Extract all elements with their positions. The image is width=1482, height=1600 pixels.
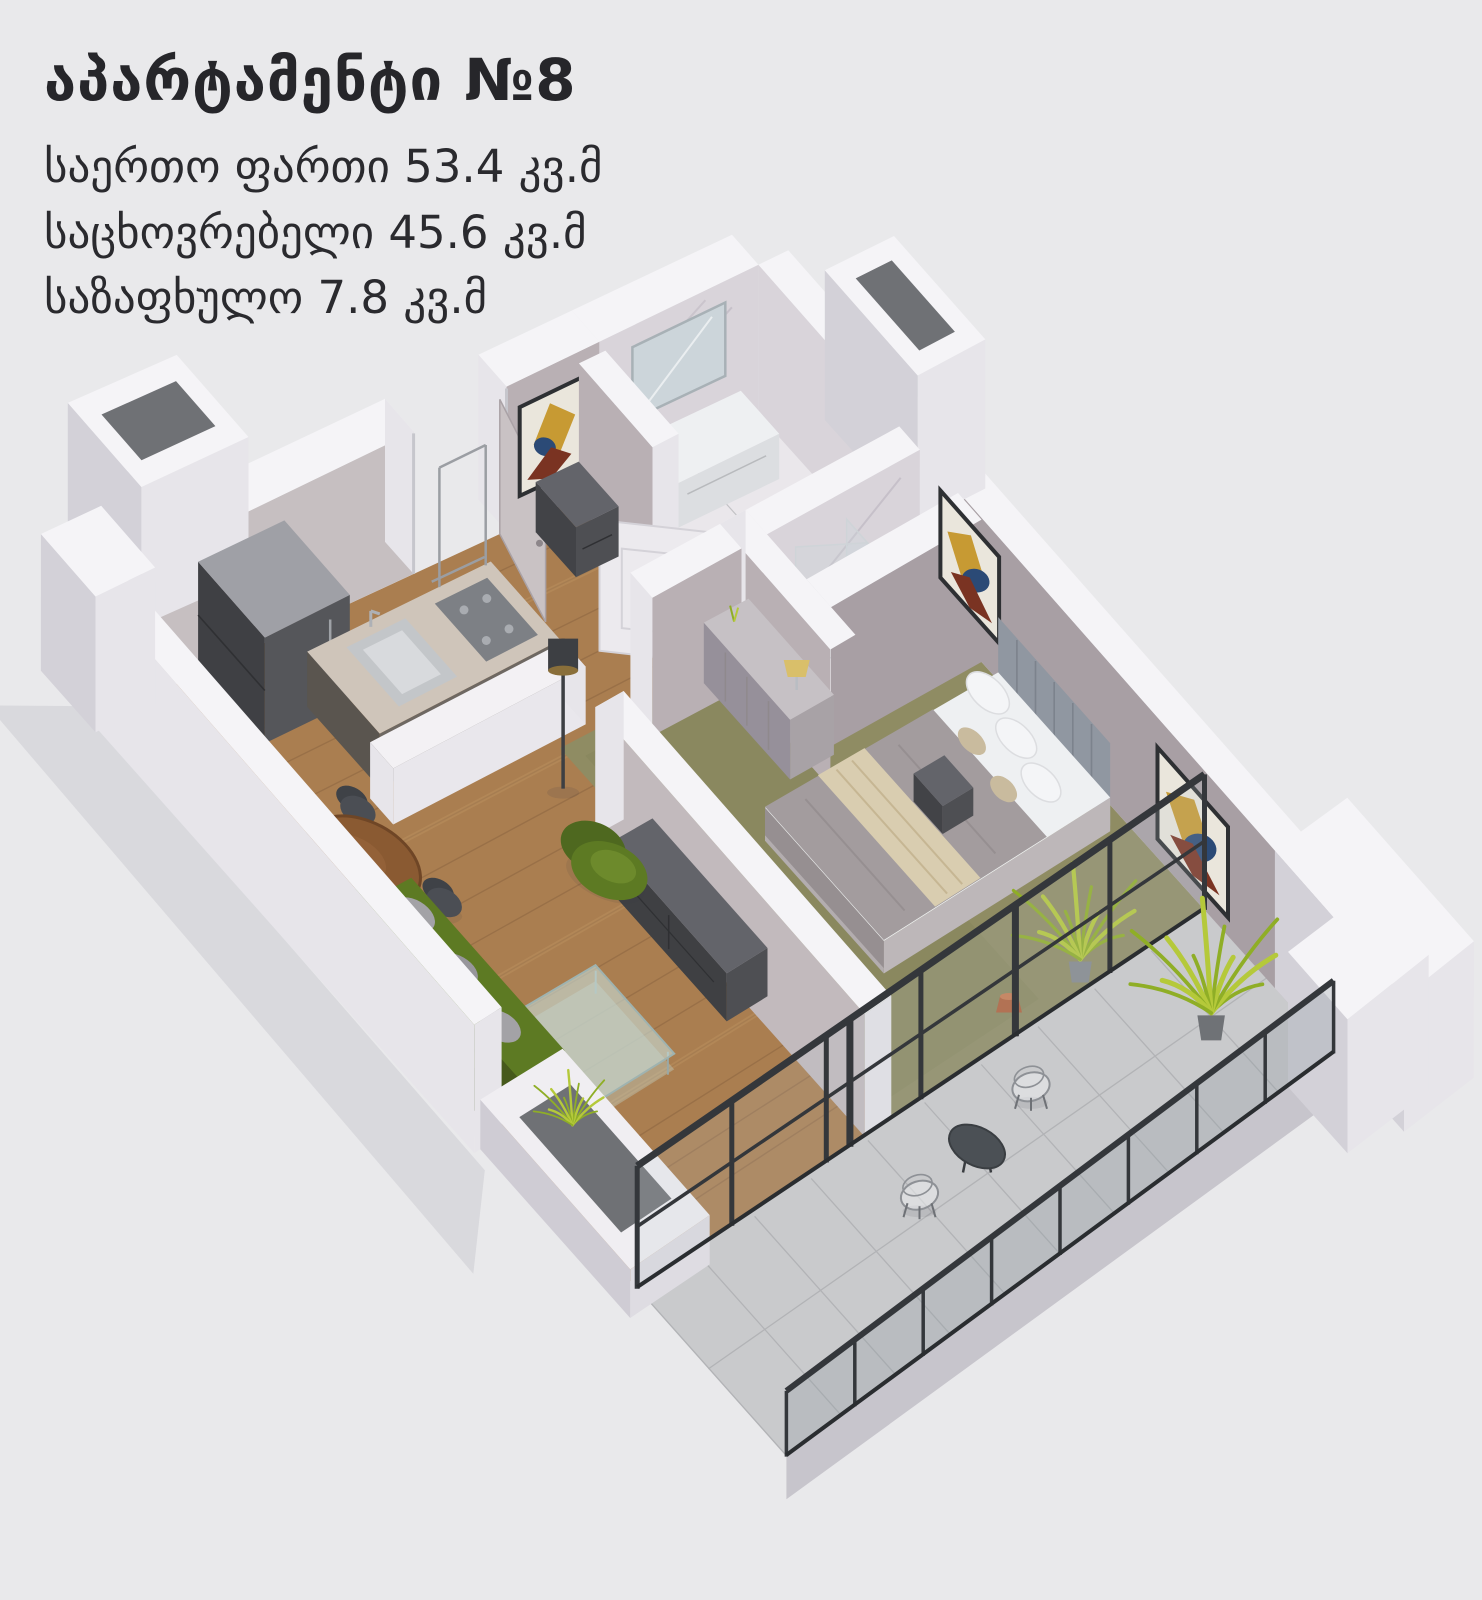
east-corner-pillar [1275, 798, 1474, 1153]
apartment-title: აპარტამენტი №8 [44, 46, 603, 114]
floorplan-page: აპარტამენტი №8 საერთო ფართი 53.4 კვ.მ სა… [0, 0, 1482, 1600]
area-line-summer: საზაფხულო 7.8 კვ.მ [44, 265, 603, 331]
apartment-info-caption: აპარტამენტი №8 საერთო ფართი 53.4 კვ.მ სა… [44, 46, 603, 331]
area-line-living: საცხოვრებელი 45.6 კვ.მ [44, 200, 603, 266]
area-line-total: საერთო ფართი 53.4 კვ.მ [44, 134, 603, 200]
